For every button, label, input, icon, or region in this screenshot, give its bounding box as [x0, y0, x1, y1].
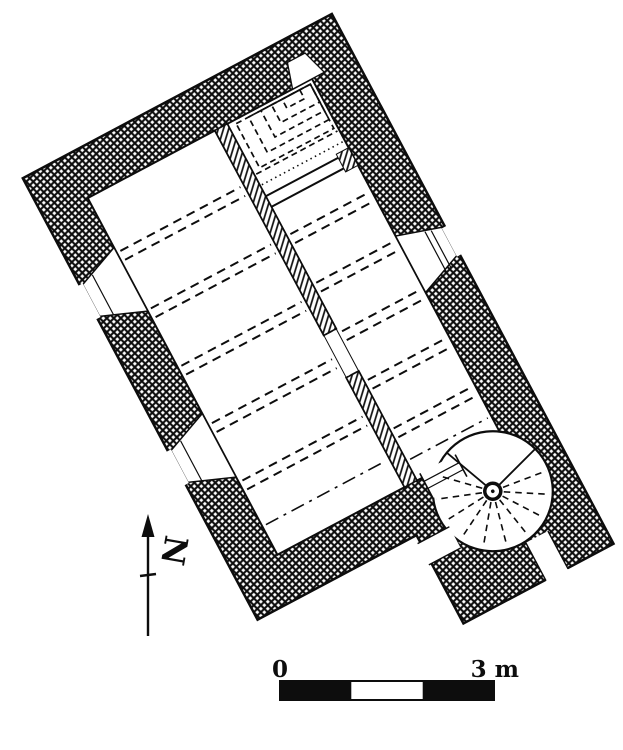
- floor-plan-page: N 0 3 m: [0, 0, 623, 750]
- scale-bar-segment-3: [423, 681, 494, 700]
- scale-bar-segment-1: [280, 681, 351, 700]
- floor-plan-drawing: N 0 3 m: [0, 0, 623, 750]
- scale-end-label: 3 m: [471, 656, 519, 683]
- scale-start-label: 0: [272, 656, 288, 683]
